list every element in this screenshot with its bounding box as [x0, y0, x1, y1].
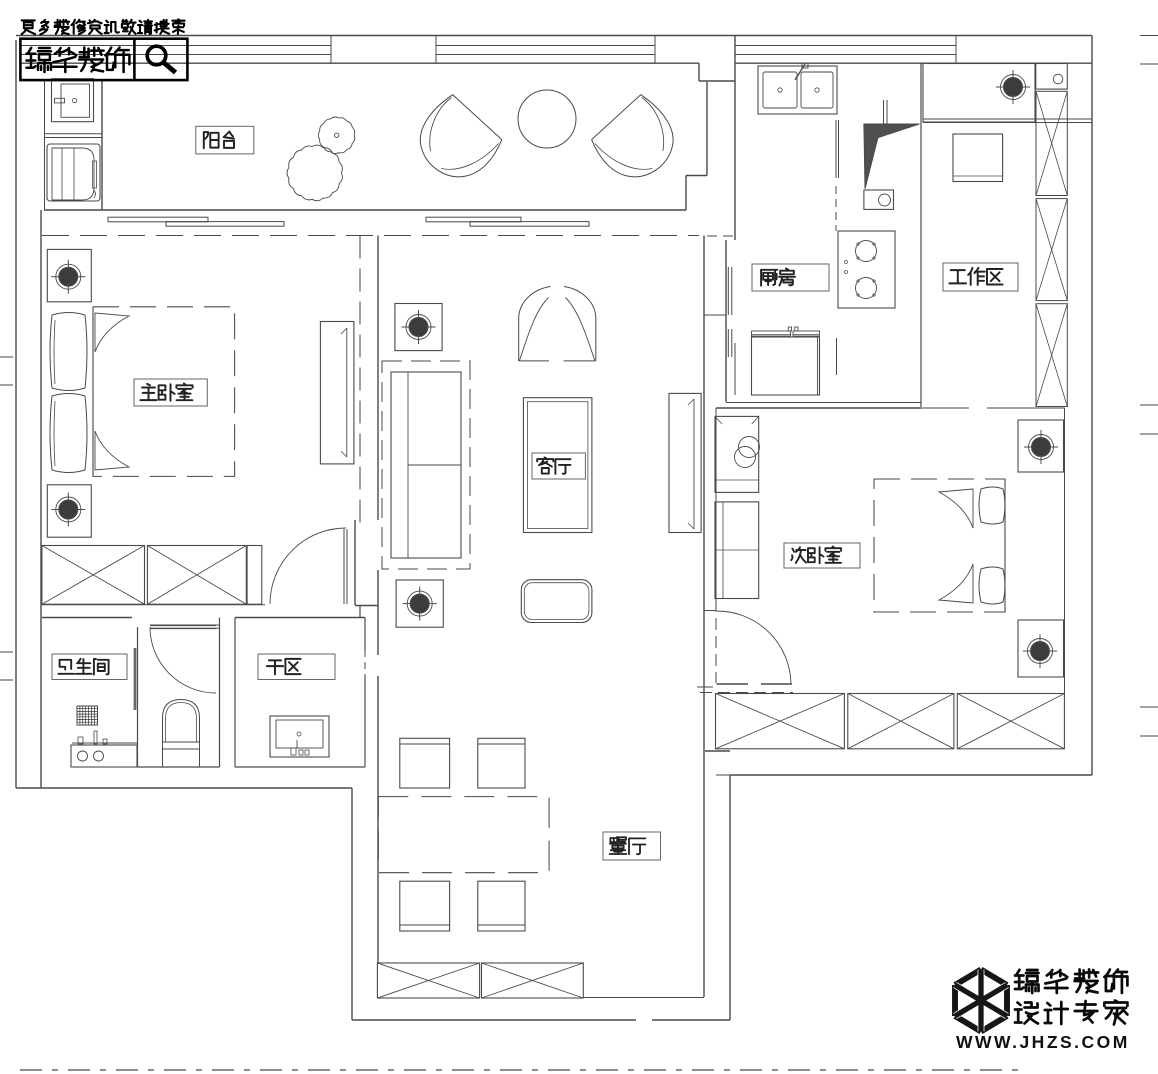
svg-text:WWW.JHZS.COM: WWW.JHZS.COM: [956, 1032, 1130, 1052]
